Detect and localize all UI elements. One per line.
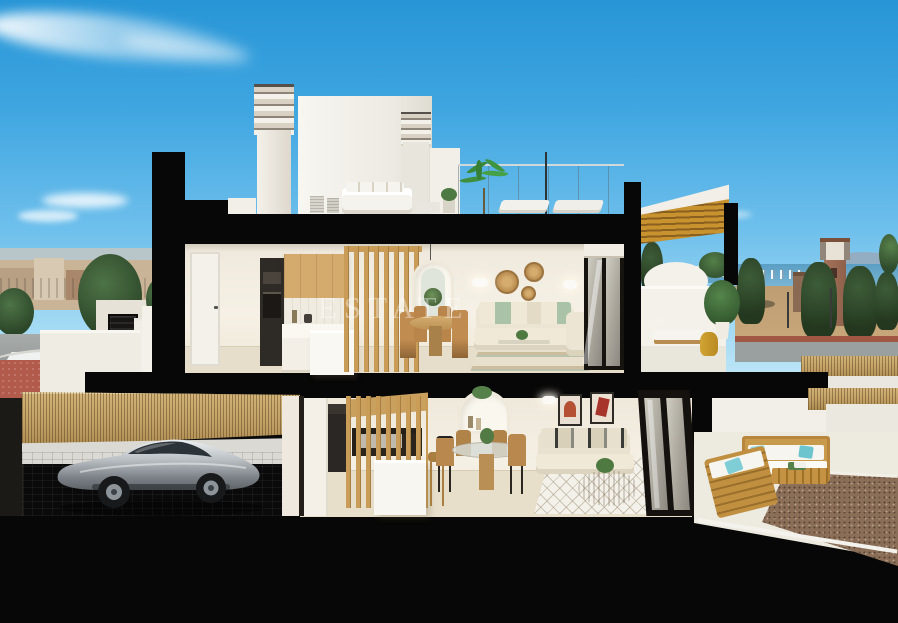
counter-kettle: [304, 314, 312, 323]
wall-sconce: [472, 278, 488, 287]
terrace-cut-column: [624, 182, 641, 398]
roof-side-table: [416, 202, 440, 213]
palm-frond: [476, 160, 482, 180]
artwork-shape: [564, 401, 576, 417]
dining-table-upper-base: [429, 326, 442, 356]
white-interior-door: [190, 252, 220, 366]
coffee-table-plant-lower: [596, 458, 614, 473]
artwork-shape: [595, 397, 610, 417]
pine-tree: [843, 266, 877, 338]
rattan-wall-plate: [521, 286, 536, 301]
rattan-coffee-table: [578, 470, 638, 506]
sofa-pillows: [479, 302, 571, 324]
palm-stem: [483, 188, 485, 214]
watermark: ESTATE: [318, 290, 469, 326]
lower-left-wall: [300, 398, 328, 516]
counter-bottle: [292, 310, 297, 323]
yellow-drum-table: [700, 332, 718, 356]
street-lamp: [830, 288, 832, 328]
pine-tree: [875, 272, 898, 330]
car-rear-hub: [208, 485, 214, 491]
street-lamp: [787, 292, 789, 328]
garage-right-wall: [282, 396, 304, 516]
watchtower-cap: [820, 238, 850, 260]
chimney-right-cap: [401, 112, 431, 146]
left-cut-wall: [152, 152, 185, 400]
cross-section-render: ESTATE: [0, 0, 898, 623]
chimney-left-cap: [254, 84, 294, 135]
silver-sports-car: [50, 420, 274, 520]
roof-parapet-sliver: [228, 198, 256, 214]
kitchen-island-lower: [374, 460, 426, 515]
sun-lounger: [652, 330, 706, 340]
palm-fronds-edge: [879, 234, 898, 274]
sofa-lower-pillows: [541, 428, 627, 448]
rattan-wall-plate: [495, 270, 519, 294]
sliding-glass-door-lower: [638, 390, 699, 516]
coffee-table-plant: [516, 330, 528, 340]
street-tree: [0, 288, 34, 336]
door-handle: [214, 306, 218, 309]
outdoor-coffee-table: [772, 468, 828, 484]
roof-plant: [441, 188, 457, 201]
blind-box: [584, 244, 624, 258]
niche-vases: [468, 416, 473, 428]
glass-pane: [606, 258, 620, 366]
palm-frond: [460, 172, 487, 187]
oven-door: [263, 292, 281, 318]
garage-dark-wall: [0, 398, 24, 516]
dining-chair-lower: [508, 434, 526, 466]
glass-pane: [666, 398, 690, 510]
roof-slab: [152, 214, 641, 244]
sun-lounger-roof: [498, 200, 550, 213]
roof-lounge-cushions: [346, 182, 404, 192]
coffee-table-upper: [498, 340, 550, 344]
wall-sconce-lower: [542, 396, 556, 404]
car-shadow: [60, 500, 264, 516]
canopy-assembly: [639, 178, 729, 244]
framed-artwork: [558, 394, 582, 426]
table-tray-plant: [788, 462, 806, 470]
oven-screen: [263, 272, 281, 284]
small-cloud: [42, 193, 128, 208]
wall-sconce: [563, 280, 577, 289]
canopy-cut-column: [724, 203, 738, 285]
niche-hanging-plant: [472, 386, 492, 399]
chimney-left-body: [257, 130, 291, 216]
rattan-wall-plate: [524, 262, 544, 282]
teal-pillow: [798, 445, 814, 459]
ac-unit: [310, 196, 324, 213]
chair-legs: [510, 466, 524, 494]
pine-tree: [737, 258, 765, 324]
chair-legs: [438, 466, 452, 492]
car-front-hub: [111, 489, 117, 495]
ac-unit: [327, 198, 339, 213]
sun-lounger-roof: [552, 200, 604, 213]
small-cloud-2: [18, 210, 78, 222]
table-plant: [480, 428, 494, 444]
glass-table-base: [479, 454, 494, 490]
framed-artwork: [590, 392, 614, 424]
terrace-plant: [704, 280, 740, 326]
